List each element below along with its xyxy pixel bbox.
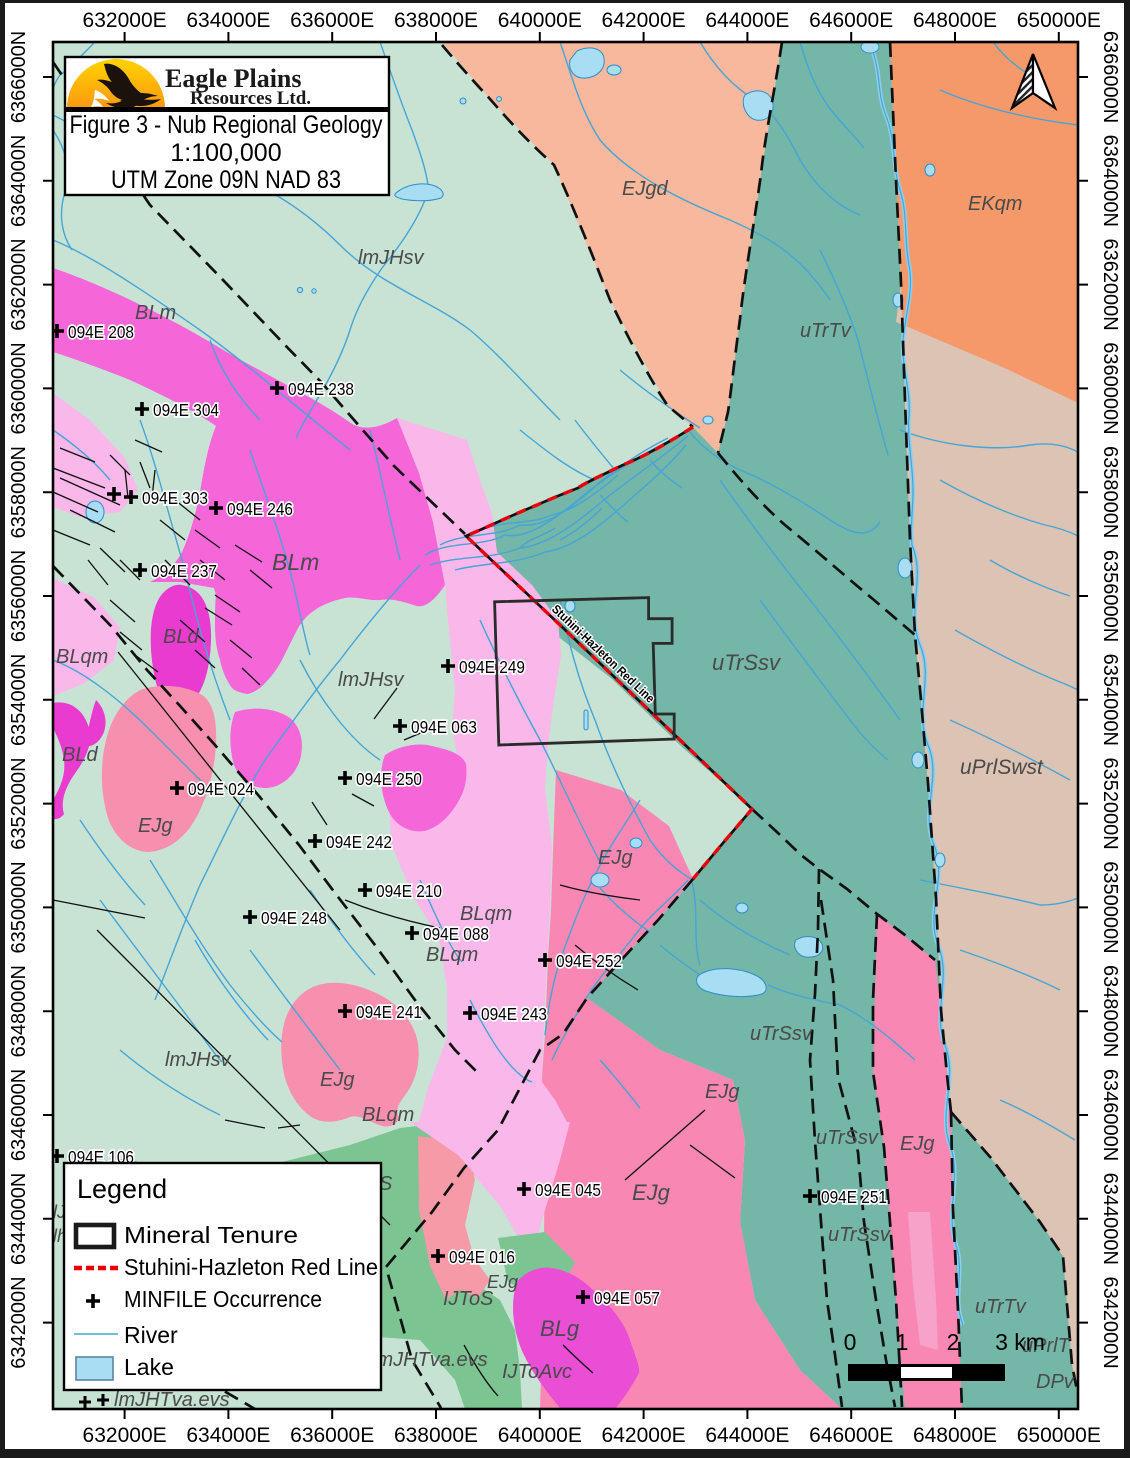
svg-text:BLm: BLm <box>135 302 176 324</box>
svg-text:6342000N: 6342000N <box>1099 1276 1121 1368</box>
svg-text:634000E: 634000E <box>186 1424 270 1447</box>
svg-text:636000E: 636000E <box>290 9 374 32</box>
svg-text:6346000N: 6346000N <box>1099 1069 1121 1161</box>
svg-text:EKqm: EKqm <box>968 193 1022 215</box>
svg-text:6348000N: 6348000N <box>8 965 30 1057</box>
svg-text:094E 016: 094E 016 <box>449 1247 515 1267</box>
svg-text:634000E: 634000E <box>186 9 270 32</box>
svg-text:6366000N: 6366000N <box>8 31 30 123</box>
svg-text:094E 248: 094E 248 <box>261 908 327 928</box>
svg-text:Lake: Lake <box>124 1354 174 1380</box>
svg-text:Resources Ltd.: Resources Ltd. <box>190 88 311 109</box>
svg-text:Legend: Legend <box>77 1174 167 1204</box>
svg-text:BLqm: BLqm <box>362 1104 414 1126</box>
svg-text:uTrSsv: uTrSsv <box>816 1127 879 1149</box>
svg-text:1:100,000: 1:100,000 <box>170 139 281 167</box>
svg-text:094E 241: 094E 241 <box>356 1002 422 1022</box>
svg-text:River: River <box>124 1322 178 1348</box>
svg-text:lmJHTva.evs: lmJHTva.evs <box>372 1349 488 1371</box>
svg-text:lmJHsv: lmJHsv <box>165 1049 232 1071</box>
svg-text:094E 088: 094E 088 <box>423 924 489 944</box>
svg-text:Figure 3 - Nub Regional Geolog: Figure 3 - Nub Regional Geology <box>70 111 383 139</box>
svg-text:6352000N: 6352000N <box>1099 757 1121 849</box>
svg-text:6362000N: 6362000N <box>1099 238 1121 330</box>
svg-text:6350000N: 6350000N <box>8 861 30 953</box>
svg-text:094E 243: 094E 243 <box>481 1004 547 1024</box>
svg-text:636000E: 636000E <box>290 1424 374 1447</box>
svg-text:638000E: 638000E <box>394 1424 478 1447</box>
svg-text:6348000N: 6348000N <box>1099 965 1121 1057</box>
svg-text:uTrTv: uTrTv <box>975 1296 1027 1318</box>
svg-text:6354000N: 6354000N <box>1099 654 1121 746</box>
svg-text:6350000N: 6350000N <box>1099 861 1121 953</box>
svg-text:6358000N: 6358000N <box>8 446 30 538</box>
svg-text:MINFILE Occurrence: MINFILE Occurrence <box>124 1286 322 1312</box>
svg-text:632000E: 632000E <box>83 9 167 32</box>
svg-text:094E 238: 094E 238 <box>288 379 354 399</box>
svg-text:uTrSsv: uTrSsv <box>750 1023 813 1045</box>
svg-text:642000E: 642000E <box>602 9 686 32</box>
svg-text:EJg: EJg <box>598 847 632 869</box>
svg-text:094E 251: 094E 251 <box>821 1187 887 1207</box>
svg-text:6354000N: 6354000N <box>8 654 30 746</box>
svg-text:094E 208: 094E 208 <box>68 322 134 342</box>
svg-text:640000E: 640000E <box>498 1424 582 1447</box>
svg-text:6344000N: 6344000N <box>1099 1173 1121 1265</box>
svg-text:6352000N: 6352000N <box>8 757 30 849</box>
svg-text:644000E: 644000E <box>705 1424 789 1447</box>
svg-text:650000E: 650000E <box>1017 9 1101 32</box>
svg-text:uTrSsv: uTrSsv <box>828 1224 891 1246</box>
svg-text:Mineral Tenure: Mineral Tenure <box>124 1222 298 1248</box>
svg-text:094E 024: 094E 024 <box>188 779 254 799</box>
svg-text:6356000N: 6356000N <box>1099 550 1121 642</box>
svg-text:6344000N: 6344000N <box>8 1173 30 1265</box>
svg-text:BLqm: BLqm <box>56 646 108 668</box>
svg-text:094E 063: 094E 063 <box>411 717 477 737</box>
svg-text:640000E: 640000E <box>498 9 582 32</box>
svg-text:uPrlSwst: uPrlSwst <box>960 756 1044 779</box>
svg-text:BLm: BLm <box>272 549 319 575</box>
svg-text:094E 303: 094E 303 <box>142 488 208 508</box>
svg-text:lmJHsv: lmJHsv <box>358 247 425 269</box>
svg-text:EJg: EJg <box>487 1272 518 1292</box>
svg-text:3 km: 3 km <box>995 1329 1045 1355</box>
svg-text:BLd: BLd <box>163 626 199 648</box>
svg-text:6366000N: 6366000N <box>1099 31 1121 123</box>
svg-text:094E 304: 094E 304 <box>153 400 219 420</box>
svg-text:lmJHTva.evs: lmJHTva.evs <box>114 1389 230 1411</box>
svg-text:6360000N: 6360000N <box>1099 342 1121 434</box>
svg-text:094E 045: 094E 045 <box>535 1180 601 1200</box>
svg-text:1: 1 <box>896 1329 909 1355</box>
svg-text:638000E: 638000E <box>394 9 478 32</box>
svg-text:DPv: DPv <box>1036 1371 1075 1393</box>
svg-text:UTM Zone 09N NAD 83: UTM Zone 09N NAD 83 <box>111 166 341 194</box>
svg-text:6360000N: 6360000N <box>8 342 30 434</box>
svg-text:6358000N: 6358000N <box>1099 446 1121 538</box>
svg-text:Stuhini-Hazleton Red Line: Stuhini-Hazleton Red Line <box>124 1254 378 1280</box>
svg-text:094E 237: 094E 237 <box>151 561 217 581</box>
svg-text:6362000N: 6362000N <box>8 238 30 330</box>
svg-text:IJToAvc: IJToAvc <box>502 1361 572 1383</box>
svg-text:094E 242: 094E 242 <box>326 832 392 852</box>
svg-text:650000E: 650000E <box>1017 1424 1101 1447</box>
svg-text:BLg: BLg <box>540 1316 580 1341</box>
svg-text:6364000N: 6364000N <box>8 135 30 227</box>
svg-text:094E 246: 094E 246 <box>227 499 293 519</box>
svg-text:6356000N: 6356000N <box>8 550 30 642</box>
svg-text:EJg: EJg <box>320 1069 354 1091</box>
svg-text:094E 249: 094E 249 <box>459 657 525 677</box>
svg-text:646000E: 646000E <box>809 1424 893 1447</box>
svg-text:6342000N: 6342000N <box>8 1276 30 1368</box>
svg-text:094E 252: 094E 252 <box>556 951 622 971</box>
svg-text:642000E: 642000E <box>602 1424 686 1447</box>
svg-text:6346000N: 6346000N <box>8 1069 30 1161</box>
svg-text:EJg: EJg <box>900 1133 934 1155</box>
svg-text:EJgd: EJgd <box>622 178 668 200</box>
svg-text:094E 250: 094E 250 <box>356 769 422 789</box>
svg-text:094E 057: 094E 057 <box>594 1288 660 1308</box>
svg-text:646000E: 646000E <box>809 9 893 32</box>
svg-text:lmJHsv: lmJHsv <box>338 669 405 691</box>
svg-text:0: 0 <box>844 1329 857 1355</box>
svg-text:6364000N: 6364000N <box>1099 135 1121 227</box>
svg-text:BLqm: BLqm <box>426 944 478 966</box>
svg-text:632000E: 632000E <box>83 1424 167 1447</box>
svg-text:EJg: EJg <box>632 1180 671 1205</box>
svg-text:648000E: 648000E <box>913 9 997 32</box>
svg-text:EJg: EJg <box>138 815 172 837</box>
svg-text:BLqm: BLqm <box>460 903 512 925</box>
svg-text:648000E: 648000E <box>913 1424 997 1447</box>
svg-text:uTrSsv: uTrSsv <box>712 650 782 675</box>
svg-text:uTrTv: uTrTv <box>800 320 852 342</box>
svg-text:094E 210: 094E 210 <box>376 881 442 901</box>
svg-text:2: 2 <box>947 1329 960 1355</box>
svg-text:BLd: BLd <box>62 744 98 766</box>
svg-text:644000E: 644000E <box>705 9 789 32</box>
svg-text:EJg: EJg <box>705 1081 739 1103</box>
